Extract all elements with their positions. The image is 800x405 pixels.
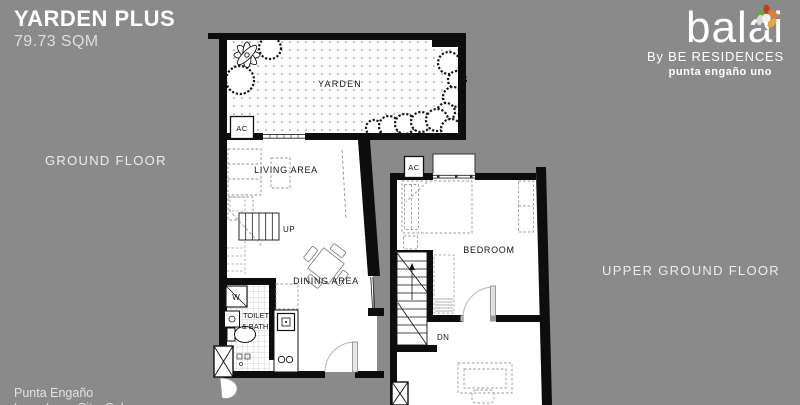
toilet-label-2: & BATH [242,322,269,331]
ac-unit-upper: AC [405,157,424,178]
living-window [263,133,305,140]
dining-area-label: DINING AREA [293,276,359,286]
floorplan-drawing: AC [0,0,800,405]
bedroom-label: BEDROOM [463,245,514,255]
floorplan-poster: YARDEN PLUS 79.73 SQM GROUND FLOOR UPPER… [0,0,800,405]
svg-text:AC: AC [408,163,420,172]
ac-unit-ground: AC [231,117,254,139]
bedroom-window [433,154,475,180]
toilet-label-1: TOILET [243,311,270,320]
exterior-column [214,346,237,399]
up-label: UP [283,225,295,234]
stairs-down [397,252,427,345]
yarden-label: YARDEN [318,79,362,89]
upper-exterior-column [392,382,408,405]
svg-text:AC: AC [236,124,248,133]
washer-label: W [232,293,240,302]
living-area-label: LIVING AREA [254,165,318,175]
dn-label: DN [437,333,449,342]
upper-floor-plan: AC [390,154,552,405]
bath-sink [225,311,240,327]
